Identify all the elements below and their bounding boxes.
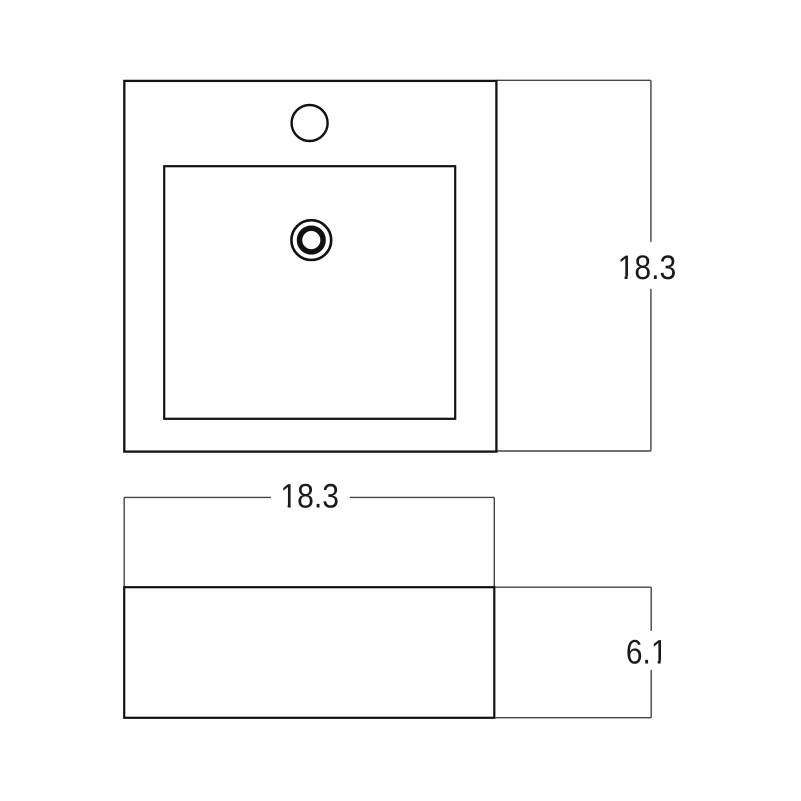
svg-text:6.1: 6.1 <box>626 634 668 672</box>
svg-text:18.3: 18.3 <box>618 249 677 287</box>
svg-text:18.3: 18.3 <box>280 477 339 515</box>
